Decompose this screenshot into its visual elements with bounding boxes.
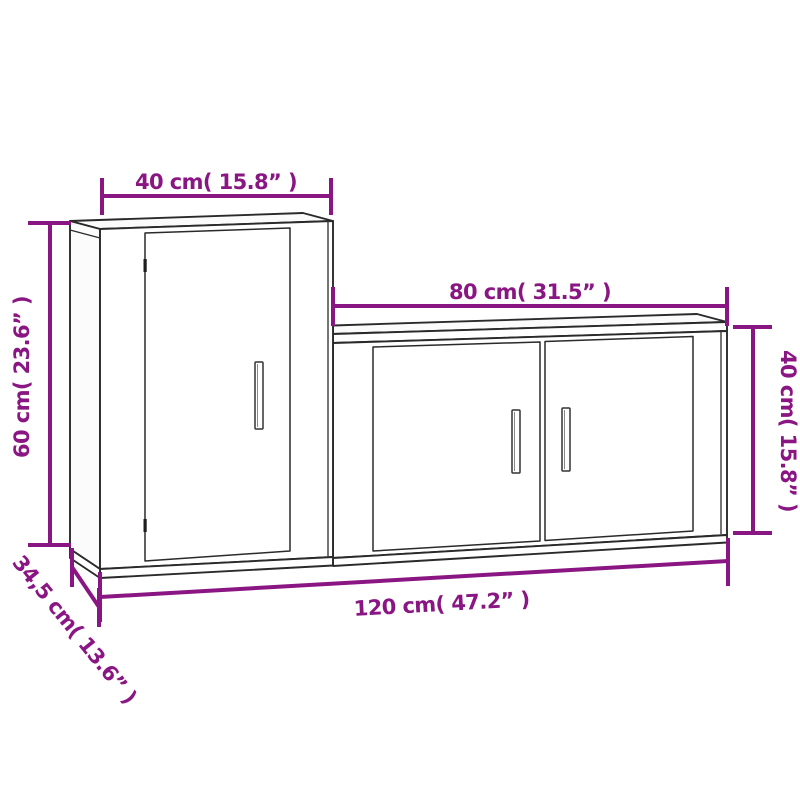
tall-cabinet [70, 213, 333, 578]
dim-tall-height-label: 60 cm( 23.6” ) [10, 296, 34, 458]
wide-cabinet-left-door-handle [512, 410, 520, 473]
diagram-canvas: 40 cm( 15.8” ) 80 cm( 31.5” ) 60 cm( 23.… [0, 0, 800, 800]
dim-wide-height-label: 40 cm( 15.8” ) [776, 350, 800, 512]
tall-cabinet-hinge-top [144, 259, 147, 272]
product-dimension-diagram: 40 cm( 15.8” ) 80 cm( 31.5” ) 60 cm( 23.… [0, 0, 800, 800]
dim-tall-height: 60 cm( 23.6” ) [10, 223, 71, 545]
wide-cabinet [333, 314, 727, 566]
dim-tall-width: 40 cm( 15.8” ) [102, 170, 331, 215]
tall-cabinet-left-side [70, 221, 100, 569]
tall-cabinet-hinge-bottom [144, 519, 147, 532]
dim-wide-width-label: 80 cm( 31.5” ) [449, 280, 611, 304]
tall-cabinet-door [145, 228, 290, 561]
dim-total-width-label: 120 cm( 47.2” ) [353, 587, 530, 621]
tall-cabinet-door-handle [255, 362, 263, 429]
wide-cabinet-right-door-handle [562, 408, 570, 471]
dim-tall-width-label: 40 cm( 15.8” ) [135, 170, 297, 194]
dim-wide-height: 40 cm( 15.8” ) [733, 327, 800, 533]
